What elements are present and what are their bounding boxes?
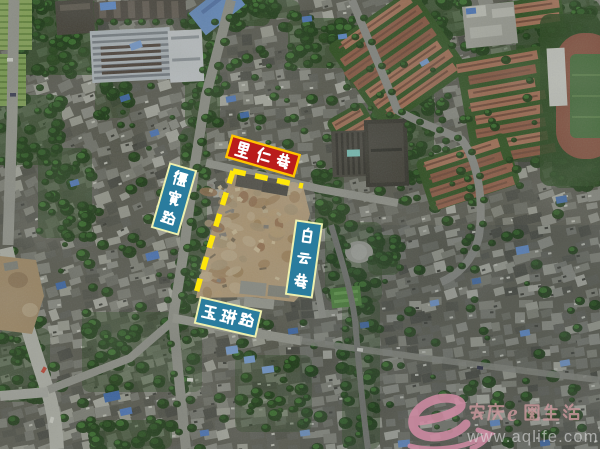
svg-text:www.aqlife.com: www.aqlife.com <box>466 428 598 446</box>
svg-text:e: e <box>507 401 518 427</box>
